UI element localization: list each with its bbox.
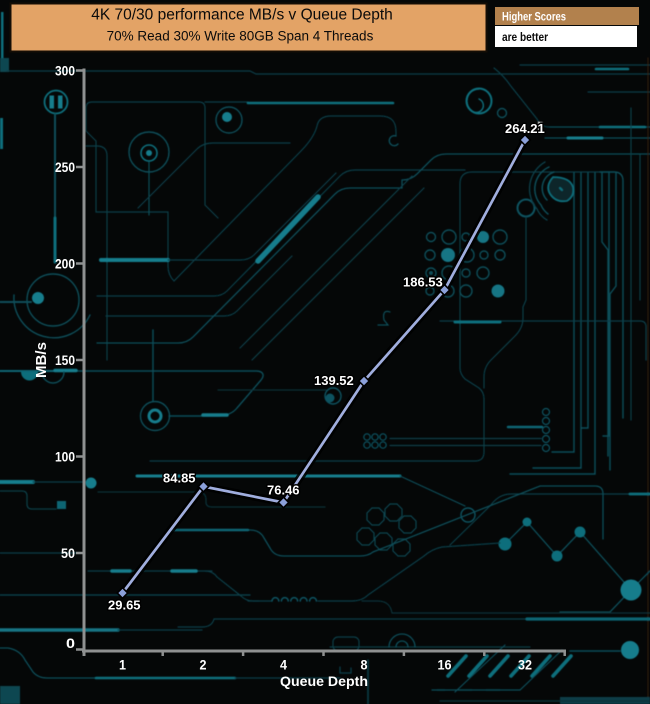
svg-text:Queue Depth: Queue Depth [280, 673, 368, 689]
svg-text:2: 2 [200, 657, 207, 673]
svg-text:264.21: 264.21 [505, 121, 545, 136]
svg-text:300: 300 [55, 63, 75, 79]
svg-text:MB/s: MB/s [33, 342, 50, 378]
svg-text:100: 100 [55, 449, 75, 465]
svg-text:0: 0 [66, 635, 75, 651]
svg-text:Higher Scores: Higher Scores [502, 10, 566, 24]
svg-text:200: 200 [55, 256, 75, 272]
svg-text:84.85: 84.85 [163, 471, 196, 486]
svg-text:16: 16 [438, 657, 452, 673]
svg-text:4K 70/30 performance MB/s v Qu: 4K 70/30 performance MB/s v Queue Depth [91, 7, 393, 24]
svg-text:150: 150 [55, 352, 75, 368]
svg-text:250: 250 [55, 159, 75, 175]
svg-text:186.53: 186.53 [403, 275, 443, 290]
svg-text:76.46: 76.46 [267, 483, 300, 498]
svg-text:32: 32 [518, 657, 532, 673]
svg-text:70% Read 30% Write 80GB Span 4: 70% Read 30% Write 80GB Span 4 Threads [107, 29, 374, 44]
svg-text:1: 1 [119, 657, 126, 673]
svg-text:8: 8 [361, 657, 368, 673]
svg-text:29.65: 29.65 [108, 598, 141, 613]
svg-text:4: 4 [280, 657, 287, 673]
svg-text:are better: are better [502, 30, 548, 44]
svg-text:139.52: 139.52 [314, 373, 354, 388]
svg-text:50: 50 [61, 545, 75, 561]
